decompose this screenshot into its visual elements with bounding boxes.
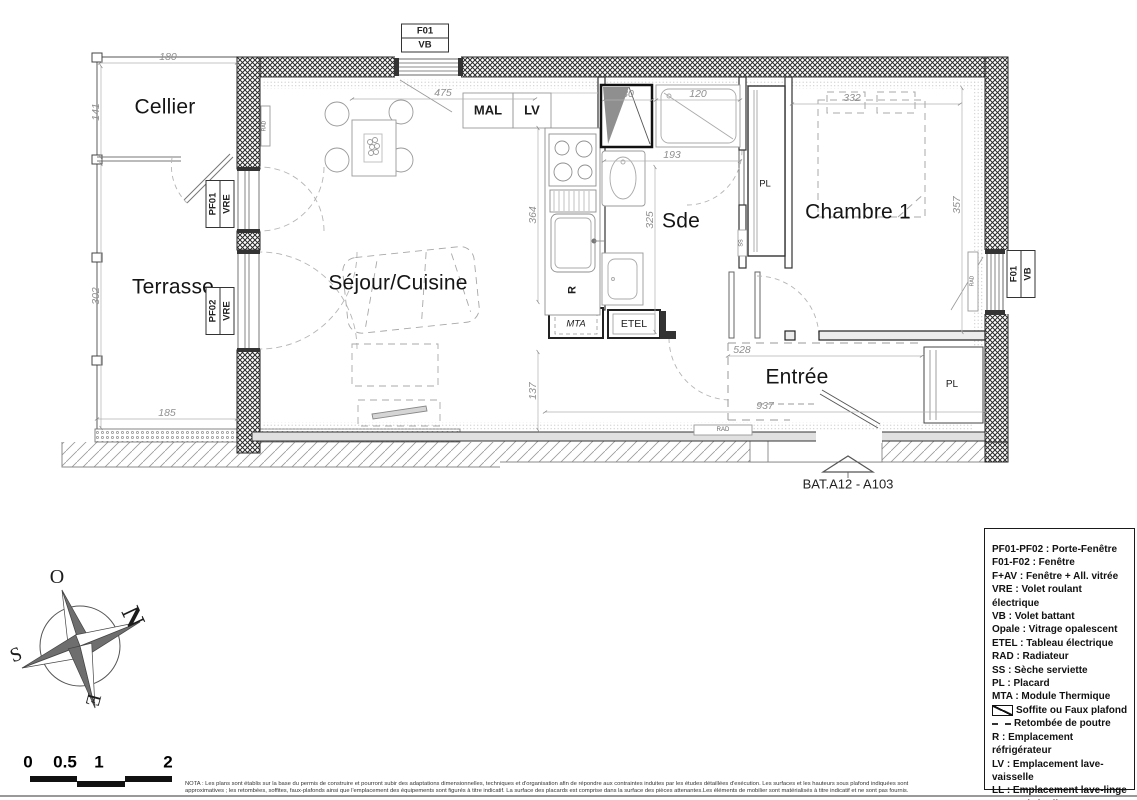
legend-text: ETEL : Tableau électrique	[992, 637, 1113, 650]
nota-text: NOTA : Les plans sont établis sur la bas…	[185, 781, 937, 795]
legend-item: LL : Emplacement lave-linge ou sèche-lin…	[992, 784, 1130, 800]
legend-item: Soffite ou Faux plafond	[992, 704, 1130, 717]
terrace-group	[92, 53, 460, 442]
legend-item: Retombée de poutre	[992, 717, 1130, 730]
scale-bar-graphic	[30, 776, 172, 787]
legend-item: PL : Placard	[992, 677, 1130, 690]
legend-text: F+AV : Fenêtre + All. vitrée	[992, 570, 1118, 583]
legend-item: RAD : Radiateur	[992, 650, 1130, 663]
soffite-icon	[992, 705, 1013, 716]
legend-item: VRE : Volet roulant électrique	[992, 583, 1130, 610]
beam-icon	[992, 717, 1011, 725]
legend-item: F01-F02 : Fenêtre	[992, 556, 1130, 569]
ground-hatching	[62, 441, 985, 467]
legend-text: Opale : Vitrage opalescent	[992, 623, 1117, 636]
dimension-lines	[97, 63, 985, 430]
legend-text: F01-F02 : Fenêtre	[992, 556, 1075, 569]
legend-item: SS : Sèche serviette	[992, 664, 1130, 677]
legend-text: R : Emplacement réfrigérateur	[992, 731, 1130, 758]
legend-text: VRE : Volet roulant électrique	[992, 583, 1130, 610]
legend-text: Soffite ou Faux plafond	[1016, 704, 1127, 717]
legend-item: MTA : Module Thermique	[992, 690, 1130, 703]
legend-text: LL : Emplacement lave-linge ou sèche-lin…	[992, 784, 1127, 800]
legend-box: PF01-PF02 : Porte-FenêtreF01-F02 : Fenêt…	[984, 528, 1135, 790]
floor-plan-sheet: CellierTerrasseSéjour/CuisineSdeChambre …	[0, 0, 1137, 800]
kitchen-fixtures	[545, 128, 604, 315]
legend-item: Opale : Vitrage opalescent	[992, 623, 1130, 636]
legend-text: SS : Sèche serviette	[992, 664, 1088, 677]
floor-plan-svg	[0, 0, 1137, 800]
legend-text: PL : Placard	[992, 677, 1050, 690]
legend-item: LV : Emplacement lave-vaisselle	[992, 758, 1130, 785]
legend-item: ETEL : Tableau électrique	[992, 637, 1130, 650]
legend-text: RAD : Radiateur	[992, 650, 1069, 663]
legend-text: Retombée de poutre	[1014, 717, 1111, 730]
sheet-bottom-line	[0, 795, 1137, 797]
legend-item: PF01-PF02 : Porte-Fenêtre	[992, 543, 1130, 556]
legend-items: PF01-PF02 : Porte-FenêtreF01-F02 : Fenêt…	[992, 543, 1130, 800]
legend-text: PF01-PF02 : Porte-Fenêtre	[992, 543, 1117, 556]
legend-item: VB : Volet battant	[992, 610, 1130, 623]
legend-text: VB : Volet battant	[992, 610, 1075, 623]
living-furniture	[325, 100, 481, 426]
legend-item: F+AV : Fenêtre + All. vitrée	[992, 570, 1130, 583]
legend-item: R : Emplacement réfrigérateur	[992, 731, 1130, 758]
legend-text: MTA : Module Thermique	[992, 690, 1110, 703]
bathroom-fixtures	[601, 85, 740, 305]
legend-text: LV : Emplacement lave-vaisselle	[992, 758, 1130, 785]
compass-rose	[22, 590, 140, 708]
bedroom-furniture	[818, 92, 925, 217]
